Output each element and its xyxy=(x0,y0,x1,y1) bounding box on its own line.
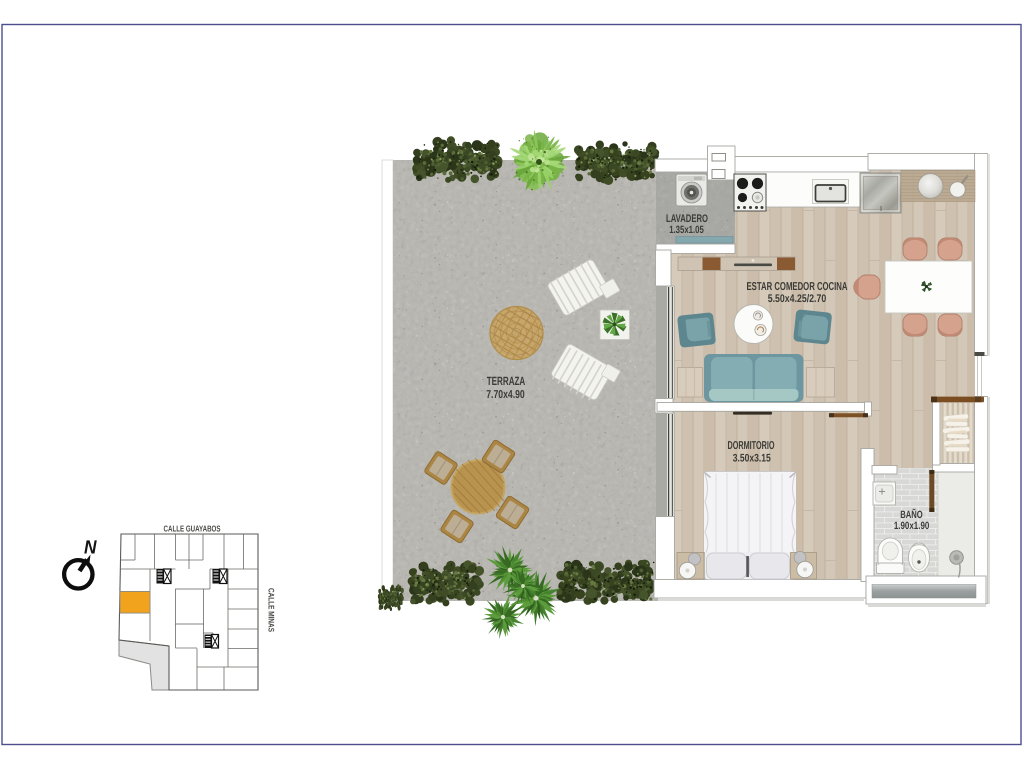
svg-text:CALLE MINAS: CALLE MINAS xyxy=(267,588,276,632)
svg-text:TERRAZA: TERRAZA xyxy=(487,374,526,388)
svg-text:N: N xyxy=(84,538,98,559)
svg-text:7.70x4.90: 7.70x4.90 xyxy=(486,389,525,401)
svg-text:3.50x3.15: 3.50x3.15 xyxy=(733,452,771,464)
svg-text:5.50x4.25/2.70: 5.50x4.25/2.70 xyxy=(768,293,827,305)
svg-text:CALLE GUAYABOS: CALLE GUAYABOS xyxy=(164,524,221,534)
svg-text:ESTAR COMEDOR COCINA: ESTAR COMEDOR COCINA xyxy=(747,281,848,293)
svg-text:1.35x1.05: 1.35x1.05 xyxy=(669,224,704,236)
svg-text:DORMITORIO: DORMITORIO xyxy=(728,440,775,452)
svg-text:1.90x1.90: 1.90x1.90 xyxy=(894,520,930,532)
